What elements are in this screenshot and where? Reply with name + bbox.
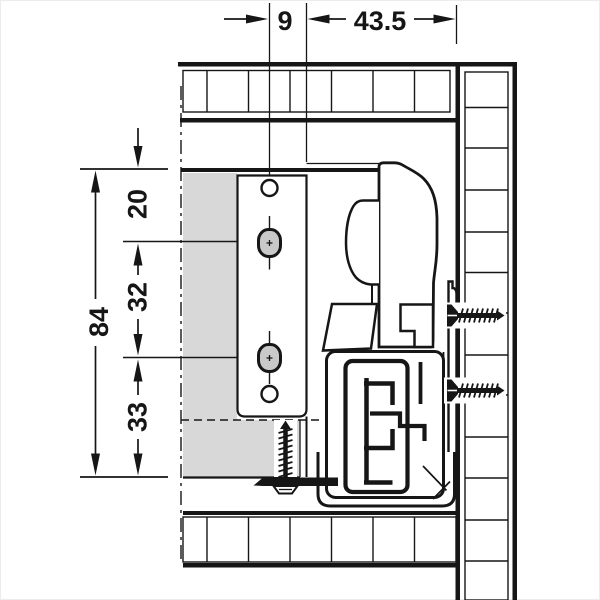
dim-84-label: 84 (84, 307, 114, 337)
drawer-slide-cross-section: 9 43.5 20 32 33 84 (0, 0, 600, 600)
dim-43-5-label: 43.5 (354, 6, 407, 36)
cabinet-bottom-panel (183, 511, 456, 568)
bracket-hole-top (262, 180, 278, 196)
dim-32-label: 32 (123, 282, 153, 312)
dim-33-label: 33 (123, 402, 153, 432)
drawer-side-top-edge (181, 168, 381, 172)
cabinet-side-panel (456, 62, 518, 600)
technical-drawing: 9 43.5 20 32 33 84 (0, 0, 600, 600)
bracket-hole-bottom (262, 386, 278, 402)
side-screw-upper (444, 303, 506, 329)
dim-9-label: 9 (277, 6, 292, 36)
bottom-flange-bar (254, 478, 339, 487)
dimension-annotations-top: 9 43.5 (224, 6, 456, 36)
side-screw-lower (444, 378, 506, 404)
drawer-side-profile (323, 163, 437, 351)
dimension-annotations-left: 20 32 33 84 (84, 128, 153, 476)
dim-20-label: 20 (123, 189, 153, 219)
